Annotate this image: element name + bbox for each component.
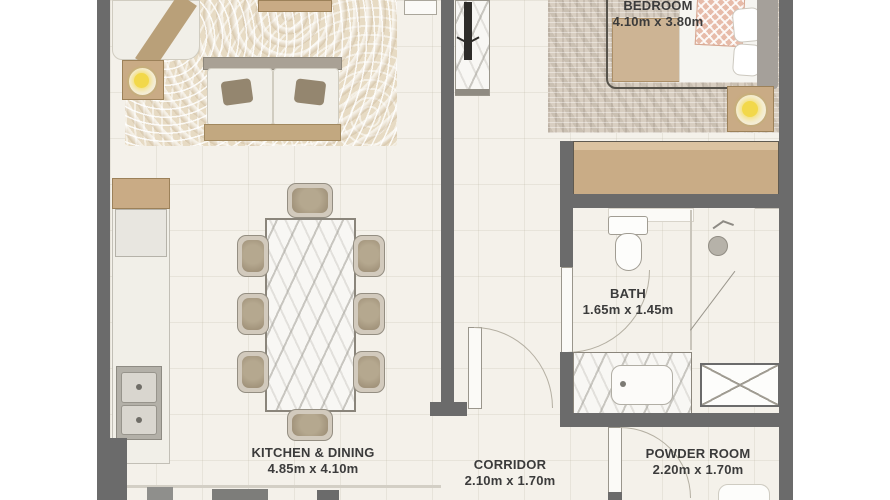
sink-basin-top: [121, 372, 157, 403]
console-shelf: [404, 0, 437, 15]
corridor-dimensions: 2.10m x 1.70m: [465, 473, 556, 489]
bed-headboard: [757, 0, 778, 89]
powder-room-dimensions: 2.20m x 1.70m: [646, 462, 751, 478]
kitchen-dining-dimensions: 4.85m x 4.10m: [251, 461, 374, 477]
floorplan-canvas: BEDROOM 4.10m x 3.80m KITCHEN & DINING 4…: [0, 0, 890, 500]
wall-powder-top: [560, 413, 793, 427]
wall-right: [779, 0, 793, 500]
wall-bottom-segment: [147, 487, 173, 500]
bath-label: BATH 1.65m x 1.45m: [583, 286, 674, 317]
dining-chair: [237, 293, 269, 335]
wall-bath-top: [560, 194, 793, 208]
table-lamp-glow: [134, 73, 149, 88]
bedroom-label: BEDROOM 4.10m x 3.80m: [613, 0, 704, 29]
kitchen-dining-label: KITCHEN & DINING 4.85m x 4.10m: [251, 445, 374, 476]
wall-bath-left-upper: [560, 208, 573, 267]
service-shaft-icon: [700, 363, 780, 407]
window-sill-bottom: [127, 485, 441, 488]
tv-icon: [464, 2, 472, 60]
wall-entry-stub: [430, 402, 467, 416]
shower-head-icon: [708, 236, 728, 256]
wall-bottom-segment: [212, 489, 268, 500]
armchair: [112, 0, 200, 60]
sofa-base: [204, 124, 341, 141]
kitchen-upper-cabinet: [112, 178, 170, 209]
bath-dimensions: 1.65m x 1.45m: [583, 302, 674, 318]
bedroom-name: BEDROOM: [613, 0, 704, 14]
wall-left: [97, 0, 110, 500]
bath-name: BATH: [583, 286, 674, 302]
powder-room-label: POWDER ROOM 2.20m x 1.70m: [646, 446, 751, 477]
dining-chair: [353, 235, 385, 277]
wall-bath-left-lower: [560, 352, 573, 413]
wall-center: [441, 0, 454, 407]
dining-chair: [353, 293, 385, 335]
kitchen-appliance: [115, 209, 167, 257]
bedroom-dimensions: 4.10m x 3.80m: [613, 14, 704, 30]
corridor-name: CORRIDOR: [465, 457, 556, 473]
dining-chair: [237, 235, 269, 277]
wall-powder-door-cap: [608, 492, 622, 500]
dining-chair: [353, 351, 385, 393]
wall-left-foot: [110, 438, 127, 500]
tv-panel: [455, 0, 490, 96]
dining-chair: [287, 409, 333, 441]
powder-room-name: POWDER ROOM: [646, 446, 751, 462]
vanity-sink-icon: [611, 365, 673, 405]
sofa-pillow-left: [220, 78, 253, 106]
nightstand-lamp-glow: [742, 101, 758, 117]
wardrobe: [573, 141, 779, 196]
tv-panel-base: [455, 89, 489, 95]
wall-bottom-segment: [317, 490, 339, 500]
dining-chair: [287, 183, 333, 218]
coffee-table: [258, 0, 332, 12]
corridor-label: CORRIDOR 2.10m x 1.70m: [465, 457, 556, 488]
toilet-bowl: [615, 233, 642, 271]
dining-table: [265, 218, 356, 412]
dining-chair: [237, 351, 269, 393]
kitchen-sink-icon: [116, 366, 162, 440]
sink-basin-bottom: [121, 405, 157, 435]
powder-toilet-icon: [718, 484, 770, 500]
kitchen-dining-name: KITCHEN & DINING: [251, 445, 374, 461]
sofa-pillow-right: [294, 78, 327, 105]
